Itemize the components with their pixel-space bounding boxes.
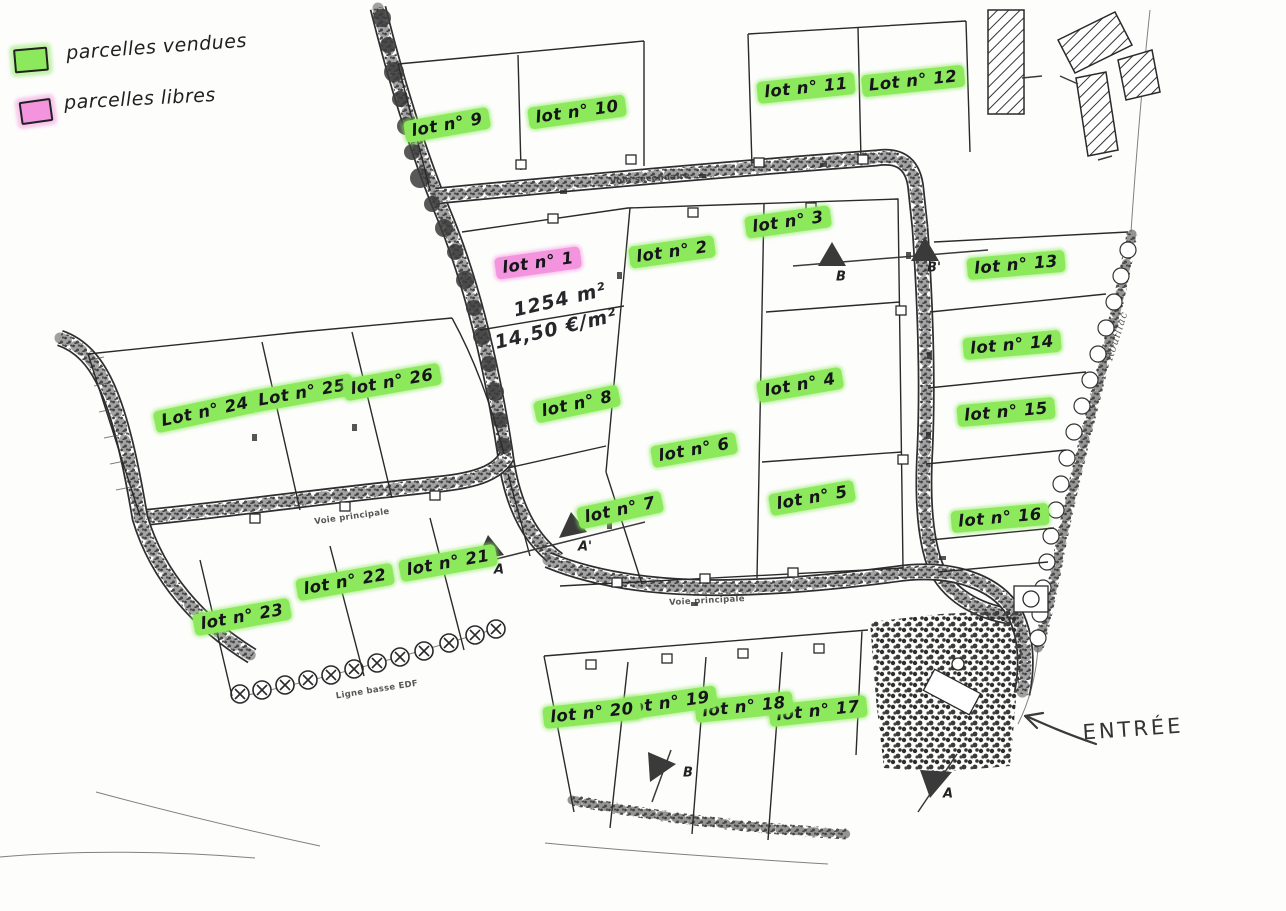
legend-swatch-free — [19, 98, 54, 125]
scan-stray-lines — [0, 792, 828, 864]
utility-building — [1014, 586, 1048, 612]
section-marker-letter: B — [836, 270, 846, 285]
scanned-subdivision-plan: parcelles vendues parcelles libres lot n… — [0, 0, 1286, 911]
road-voie-secondaire — [436, 157, 920, 228]
section-marker-letter: B' — [927, 261, 941, 276]
section-marker-letter: A' — [578, 540, 592, 555]
legend: parcelles vendues parcelles libres — [0, 0, 320, 150]
section-marker-letter: B — [683, 766, 693, 781]
legend-swatch-sold — [13, 47, 49, 74]
section-marker-letter: A — [494, 563, 504, 578]
legend-label-sold: parcelles vendues — [65, 30, 247, 65]
section-marker-letter: A — [943, 787, 953, 802]
road-voie-principale-west — [140, 456, 507, 518]
dimension-marks — [252, 163, 946, 709]
existing-buildings — [988, 10, 1160, 160]
wooded-area — [870, 610, 1022, 772]
legend-label-free: parcelles libres — [64, 84, 217, 114]
